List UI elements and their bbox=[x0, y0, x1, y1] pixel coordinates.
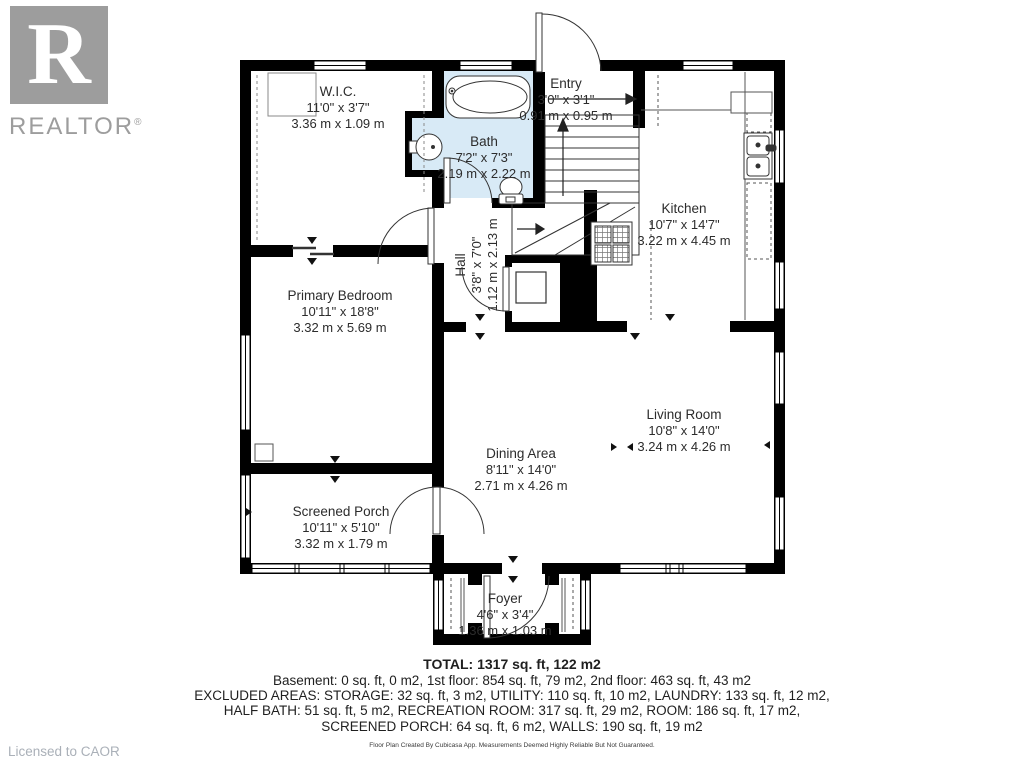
floor-plan-drawing bbox=[0, 0, 1024, 768]
room-label-wic: W.I.C. 11'0" x 3'7" 3.36 m x 1.09 m bbox=[291, 84, 384, 132]
kitchen-sink-icon bbox=[744, 133, 776, 179]
room-label-hall: Hall 3'8" x 7'0" 1.12 m x 2.13 m bbox=[453, 218, 501, 311]
realtor-logo-text: REALTOR® bbox=[9, 113, 142, 141]
disclaimer-text: Floor Plan Created By Cubicasa App. Meas… bbox=[0, 742, 1024, 749]
stove-icon bbox=[591, 222, 632, 265]
licensed-to-text: Licensed to CAOR bbox=[8, 744, 120, 759]
floors-area-text: Basement: 0 sq. ft, 0 m2, 1st floor: 854… bbox=[0, 673, 1024, 688]
excluded-areas-line2: HALF BATH: 51 sq. ft, 5 m2, RECREATION R… bbox=[0, 703, 1024, 718]
area-summary: TOTAL: 1317 sq. ft, 122 m2 Basement: 0 s… bbox=[0, 656, 1024, 734]
bathtub-icon bbox=[446, 76, 530, 118]
kitchen-counter bbox=[641, 72, 772, 320]
room-label-living-room: Living Room 10'8" x 14'0" 3.24 m x 4.26 … bbox=[637, 407, 730, 455]
room-label-kitchen: Kitchen 10'7" x 14'7" 3.22 m x 4.45 m bbox=[637, 201, 730, 249]
total-area-text: TOTAL: 1317 sq. ft, 122 m2 bbox=[0, 656, 1024, 673]
excluded-areas-line3: SCREENED PORCH: 64 sq. ft, 6 m2, WALLS: … bbox=[0, 719, 1024, 734]
room-label-primary-bedroom: Primary Bedroom 10'11" x 18'8" 3.32 m x … bbox=[287, 288, 392, 336]
excluded-areas-line1: EXCLUDED AREAS: STORAGE: 32 sq. ft, 3 m2… bbox=[0, 688, 1024, 703]
floor-plan-page: { "branding": { "logo_letter": "R", "log… bbox=[0, 0, 1024, 768]
fireplace bbox=[512, 263, 560, 322]
room-label-dining-area: Dining Area 8'11" x 14'0" 2.71 m x 4.26 … bbox=[474, 446, 567, 494]
floor-register bbox=[255, 444, 273, 461]
room-label-entry: Entry 3'0" x 3'1" 0.91 m x 0.95 m bbox=[519, 76, 612, 124]
room-label-foyer: Foyer 4'6" x 3'4" 1.36 m x 1.03 m bbox=[458, 591, 551, 639]
room-label-screened-porch: Screened Porch 10'11" x 5'10" 3.32 m x 1… bbox=[293, 504, 390, 552]
realtor-logo-icon: R bbox=[10, 6, 108, 104]
room-label-bath: Bath 7'2" x 7'3" 2.19 m x 2.22 m bbox=[437, 134, 530, 182]
